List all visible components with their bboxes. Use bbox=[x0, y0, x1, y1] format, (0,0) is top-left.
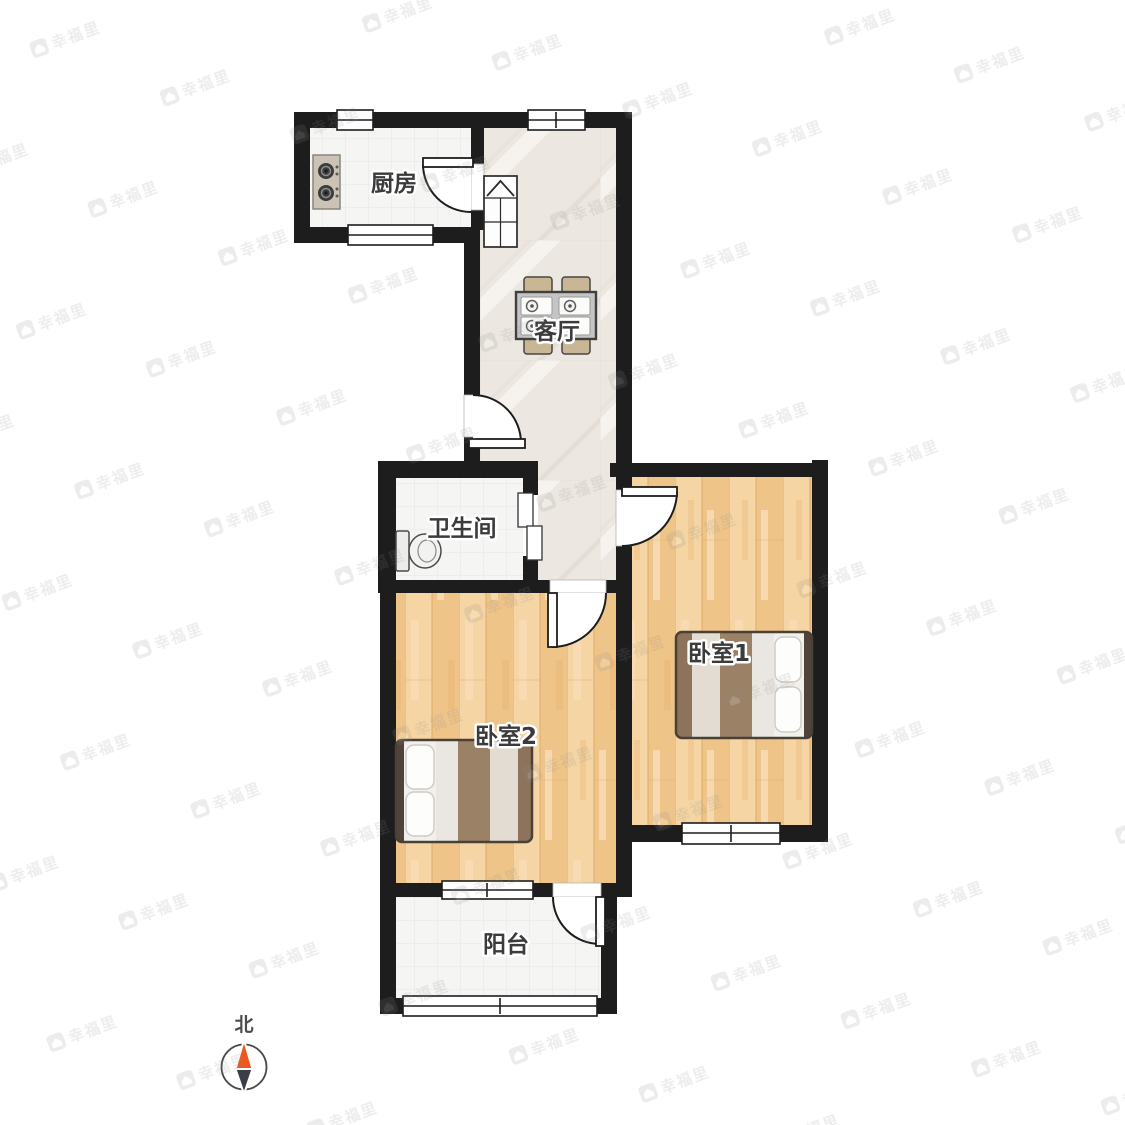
floorplan-svg: 幸福里 幸福里 bbox=[0, 0, 1125, 1125]
floorplan-canvas: 幸福里 幸福里 bbox=[0, 0, 1125, 1125]
watermark-layer bbox=[0, 0, 1125, 1125]
